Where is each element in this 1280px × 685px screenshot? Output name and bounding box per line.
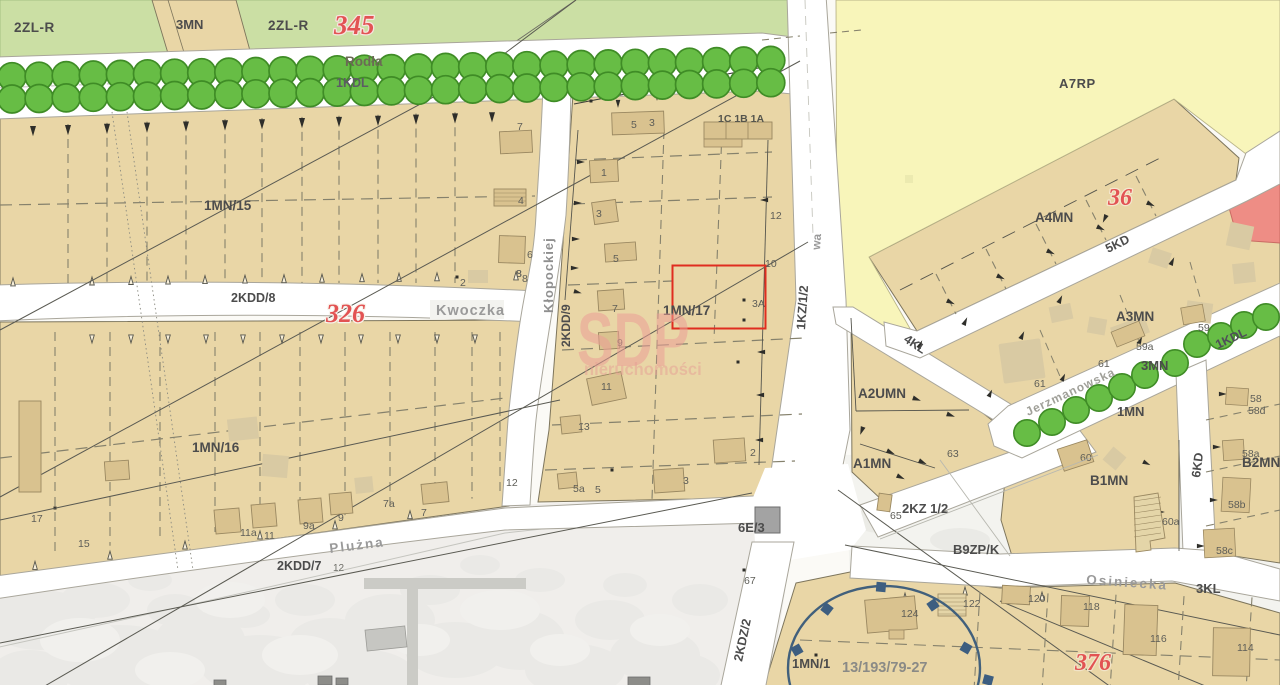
svg-text:13: 13 — [578, 421, 590, 433]
svg-text:A2UMN: A2UMN — [858, 386, 906, 401]
svg-text:Kwoczka: Kwoczka — [436, 303, 505, 319]
svg-text:3MN: 3MN — [176, 17, 203, 32]
svg-text:11a: 11a — [240, 527, 257, 539]
svg-text:11: 11 — [264, 530, 275, 542]
svg-text:58d: 58d — [1248, 405, 1266, 417]
svg-text:2KZ 1/2: 2KZ 1/2 — [902, 501, 948, 516]
svg-text:376: 376 — [1074, 650, 1111, 676]
svg-text:2ZL-R: 2ZL-R — [268, 18, 309, 33]
svg-text:3: 3 — [649, 117, 655, 129]
svg-text:58c: 58c — [1216, 545, 1233, 557]
svg-text:1MN: 1MN — [1117, 404, 1144, 419]
svg-text:A3MN: A3MN — [1116, 309, 1154, 324]
svg-text:9: 9 — [338, 512, 344, 524]
svg-text:5: 5 — [631, 119, 637, 131]
svg-text:118: 118 — [1083, 601, 1100, 613]
svg-text:36: 36 — [1107, 185, 1132, 211]
svg-text:9a: 9a — [303, 520, 315, 532]
svg-text:1MN/16: 1MN/16 — [192, 440, 240, 455]
svg-text:5a: 5a — [573, 483, 585, 495]
svg-text:1KDL: 1KDL — [336, 76, 369, 90]
svg-text:61: 61 — [1098, 358, 1110, 370]
svg-text:3: 3 — [596, 208, 602, 220]
svg-text:120: 120 — [1028, 593, 1046, 605]
svg-text:3: 3 — [683, 475, 689, 487]
svg-text:5: 5 — [595, 484, 601, 496]
svg-text:12: 12 — [770, 210, 782, 222]
svg-text:61: 61 — [1034, 378, 1046, 390]
svg-text:2KDD/9: 2KDD/9 — [559, 304, 573, 347]
svg-text:15: 15 — [78, 538, 90, 550]
svg-text:wa: wa — [809, 233, 824, 251]
svg-text:nieruchomości: nieruchomości — [584, 358, 702, 379]
svg-text:59: 59 — [1198, 322, 1210, 334]
svg-text:B1MN: B1MN — [1090, 473, 1128, 488]
svg-text:65: 65 — [890, 510, 902, 522]
svg-text:4: 4 — [518, 195, 524, 207]
svg-text:2ZL-R: 2ZL-R — [14, 20, 55, 35]
svg-text:8: 8 — [516, 268, 522, 280]
svg-text:A7RP: A7RP — [1059, 76, 1096, 91]
svg-text:58: 58 — [1250, 393, 1262, 405]
svg-text:1MN/15: 1MN/15 — [204, 198, 252, 213]
svg-text:A4MN: A4MN — [1035, 210, 1073, 225]
svg-text:1: 1 — [601, 167, 607, 179]
svg-text:58b: 58b — [1228, 499, 1246, 511]
svg-text:B9ZP/K: B9ZP/K — [953, 542, 1000, 557]
svg-text:2: 2 — [750, 447, 756, 459]
svg-text:67: 67 — [744, 575, 756, 587]
svg-text:63: 63 — [947, 448, 959, 460]
svg-text:1MN/1: 1MN/1 — [792, 656, 830, 671]
svg-text:3KL: 3KL — [1196, 581, 1221, 596]
svg-text:A1MN: A1MN — [853, 456, 891, 471]
svg-text:60a: 60a — [1162, 516, 1180, 528]
svg-text:7: 7 — [517, 121, 523, 133]
svg-text:6: 6 — [527, 249, 533, 261]
svg-text:6E/3: 6E/3 — [738, 520, 765, 535]
svg-text:10: 10 — [765, 258, 777, 270]
svg-text:114: 114 — [1237, 642, 1254, 654]
svg-text:124: 124 — [901, 608, 919, 620]
svg-text:12: 12 — [333, 563, 345, 574]
svg-text:7: 7 — [421, 507, 427, 519]
svg-text:345: 345 — [333, 10, 375, 40]
svg-text:3MN: 3MN — [1141, 358, 1168, 373]
svg-text:5: 5 — [613, 253, 619, 265]
svg-text:2KDD/7: 2KDD/7 — [277, 559, 322, 573]
svg-text:326: 326 — [325, 299, 365, 328]
svg-text:2KDD/8: 2KDD/8 — [231, 291, 276, 305]
svg-text:2: 2 — [460, 277, 466, 289]
svg-text:59a: 59a — [1136, 341, 1154, 353]
svg-text:116: 116 — [1150, 633, 1167, 645]
svg-text:8: 8 — [522, 273, 528, 285]
svg-text:3A: 3A — [752, 298, 765, 310]
svg-text:58a: 58a — [1242, 448, 1260, 460]
svg-text:12: 12 — [506, 477, 518, 489]
svg-text:13/193/79-27: 13/193/79-27 — [842, 660, 927, 676]
svg-text:Kłopockiej: Kłopockiej — [541, 237, 556, 313]
svg-text:17: 17 — [31, 513, 43, 525]
svg-text:1C 1B 1A: 1C 1B 1A — [718, 113, 765, 125]
svg-text:7a: 7a — [383, 498, 395, 510]
svg-text:122: 122 — [963, 598, 981, 610]
svg-text:Rodła: Rodła — [345, 54, 383, 69]
